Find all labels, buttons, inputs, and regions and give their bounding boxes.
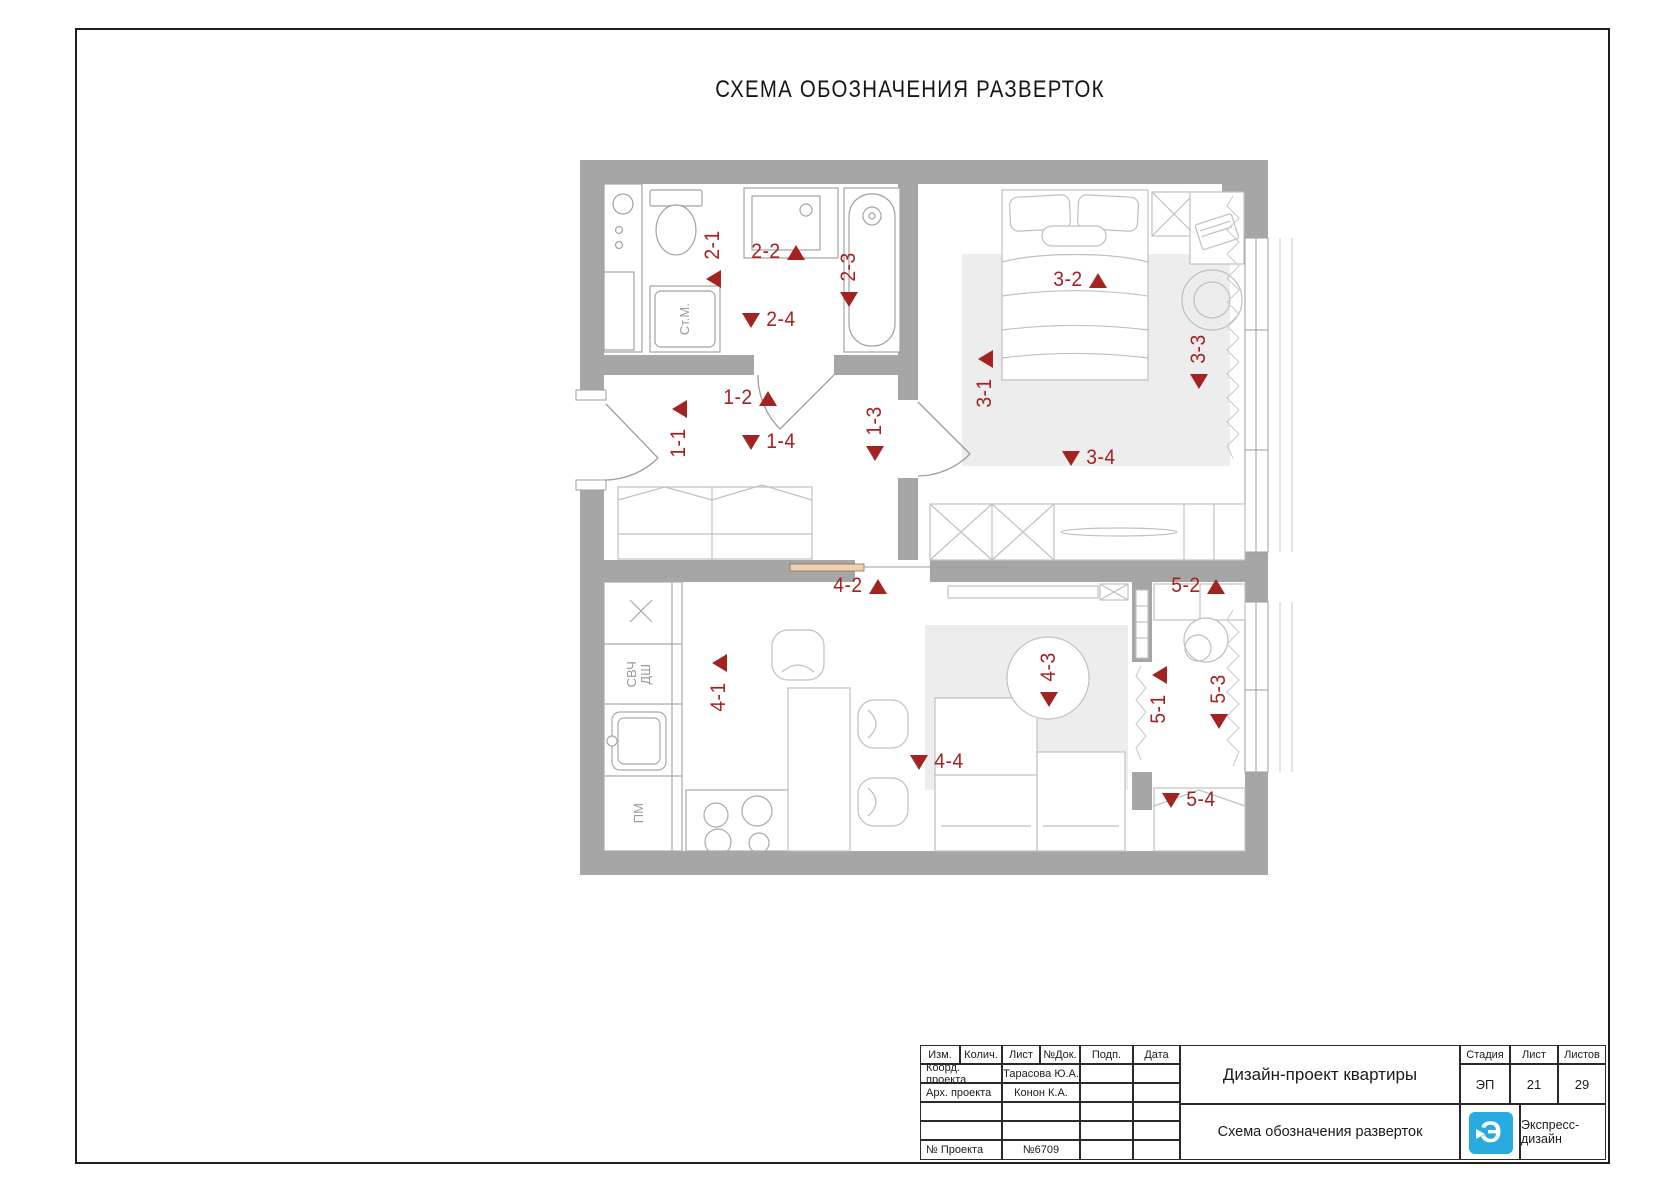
stamp-cell-empty [1080,1064,1133,1083]
elevation-marker-1-2: 1-2 [722,386,777,410]
marker-label: 1-1 [667,428,691,457]
chair [858,778,908,826]
marker-triangle-icon [742,313,760,328]
marker-label: 2-1 [701,230,725,259]
marker-label: 4-1 [707,682,731,711]
marker-triangle-icon [978,350,993,368]
elevation-marker-5-3: 5-3 [1206,666,1232,729]
elevation-marker-2-2: 2-2 [750,240,805,264]
stamp-project-value: №6709 [1002,1140,1080,1160]
elevation-marker-1-4: 1-4 [742,430,797,454]
marker-label: 2-3 [837,252,861,281]
marker-label: 4-4 [934,750,963,774]
marker-triangle-icon [866,446,884,461]
dining-table [788,688,850,851]
marker-triangle-icon [869,579,887,594]
label-dishwasher: ПМ [606,778,672,848]
marker-label: 3-3 [1187,334,1211,363]
stage-header: Стадия [1460,1045,1510,1064]
marker-label: 4-2 [833,574,862,598]
marker-triangle-icon [672,400,687,418]
elevation-marker-3-2: 3-2 [1052,268,1107,292]
marker-triangle-icon [840,292,858,307]
marker-triangle-icon [706,270,721,288]
project-title: Дизайн-проект квартиры [1180,1045,1460,1104]
stamp-arch-label: Арх. проекта [920,1083,1002,1102]
elevation-marker-1-1: 1-1 [666,400,692,466]
elevation-marker-4-4: 4-4 [910,750,965,774]
marker-label: 1-3 [863,406,887,435]
elevation-marker-4-3: 4-3 [1036,644,1062,707]
marker-label: 3-2 [1053,268,1082,292]
stamp-header-list: Лист [1002,1045,1040,1064]
elevation-marker-2-4: 2-4 [742,308,797,332]
stamp-cell-empty [1080,1083,1133,1102]
stamp-cell-empty [1080,1102,1133,1121]
stamp-cell-empty [1002,1121,1080,1140]
stamp-cell-empty [1133,1140,1180,1160]
marker-label: 1-2 [723,386,752,410]
stamp-cell-empty [1080,1121,1133,1140]
sheet-header: Лист [1510,1045,1558,1064]
marker-label: 4-3 [1037,652,1061,681]
elevation-marker-5-4: 5-4 [1162,788,1217,812]
elevation-marker-3-1: 3-1 [972,350,998,416]
marker-triangle-icon [1152,666,1167,684]
marker-triangle-icon [1207,579,1225,594]
marker-triangle-icon [1040,692,1058,707]
marker-triangle-icon [787,245,805,260]
stage-value: ЭП [1460,1064,1510,1104]
marker-triangle-icon [712,654,727,672]
elevation-marker-3-3: 3-3 [1186,326,1212,389]
marker-triangle-icon [910,755,928,770]
elevation-marker-5-1: 5-1 [1146,666,1172,732]
marker-triangle-icon [742,435,760,450]
stamp-header-podp: Подп. [1080,1045,1133,1064]
sheet-name: Схема обозначения разверток [1180,1104,1460,1160]
label-washing-machine: Ст.М. [652,288,718,350]
elevation-marker-5-2: 5-2 [1170,574,1225,598]
marker-label: 1-4 [766,430,795,454]
tv-stand [948,586,1098,598]
stamp-coord-value: Тарасова Ю.А. [1002,1064,1080,1083]
stamp-header-data: Дата [1133,1045,1180,1064]
label-microwave-oven: СВЧДШ [606,646,672,702]
marker-label: 3-1 [973,378,997,407]
toilet-bowl [656,205,696,255]
stamp-cell-empty [1080,1140,1133,1160]
chair [772,630,824,680]
elevation-marker-3-4: 3-4 [1062,446,1117,470]
elevation-marker-1-3: 1-3 [862,398,888,461]
toilet-tank [650,190,702,206]
marker-triangle-icon [1190,374,1208,389]
stamp-coord-label: Коорд. проекта [920,1064,1002,1083]
marker-triangle-icon [759,391,777,406]
stamp-project-label: № Проекта [920,1140,1002,1160]
stamp-cell-empty [1133,1121,1180,1140]
marker-label: 2-2 [751,240,780,264]
logo-arrow-icon [1476,1129,1485,1139]
total-sheets: 29 [1558,1064,1606,1104]
marker-triangle-icon [1162,793,1180,808]
elevation-marker-2-3: 2-3 [836,244,862,307]
stamp-cell-empty [920,1121,1002,1140]
marker-triangle-icon [1089,273,1107,288]
stamp-arch-value: Конон К.А. [1002,1083,1080,1102]
marker-label: 3-4 [1086,446,1115,470]
marker-triangle-icon [1210,714,1228,729]
marker-label: 5-4 [1186,788,1215,812]
sheet-number: 21 [1510,1064,1558,1104]
elevation-marker-4-1: 4-1 [706,654,732,720]
logo-cell: Э [1460,1104,1520,1160]
stamp-header-dok: №Док. [1040,1045,1080,1064]
round-chair [1184,618,1228,662]
marker-triangle-icon [1062,451,1080,466]
stamp-cell-empty [1133,1083,1180,1102]
stamp-cell-empty [1002,1102,1080,1121]
chair [858,700,908,748]
marker-label: 5-2 [1171,574,1200,598]
elevation-marker-2-1: 2-1 [700,222,726,288]
marker-label: 2-4 [766,308,795,332]
marker-label: 5-3 [1207,674,1231,703]
bedroom-wardrobe [930,504,1245,560]
stamp-cell-empty [920,1102,1002,1121]
stamp-cell-empty [1133,1102,1180,1121]
elevation-marker-4-2: 4-2 [832,574,887,598]
brand-name: Экспресс-дизайн [1520,1104,1606,1160]
hall-closet [618,485,812,559]
stamp-cell-empty [1133,1064,1180,1083]
marker-label: 5-1 [1147,694,1171,723]
company-logo: Э [1469,1112,1513,1154]
total-header: Листов [1558,1045,1606,1064]
